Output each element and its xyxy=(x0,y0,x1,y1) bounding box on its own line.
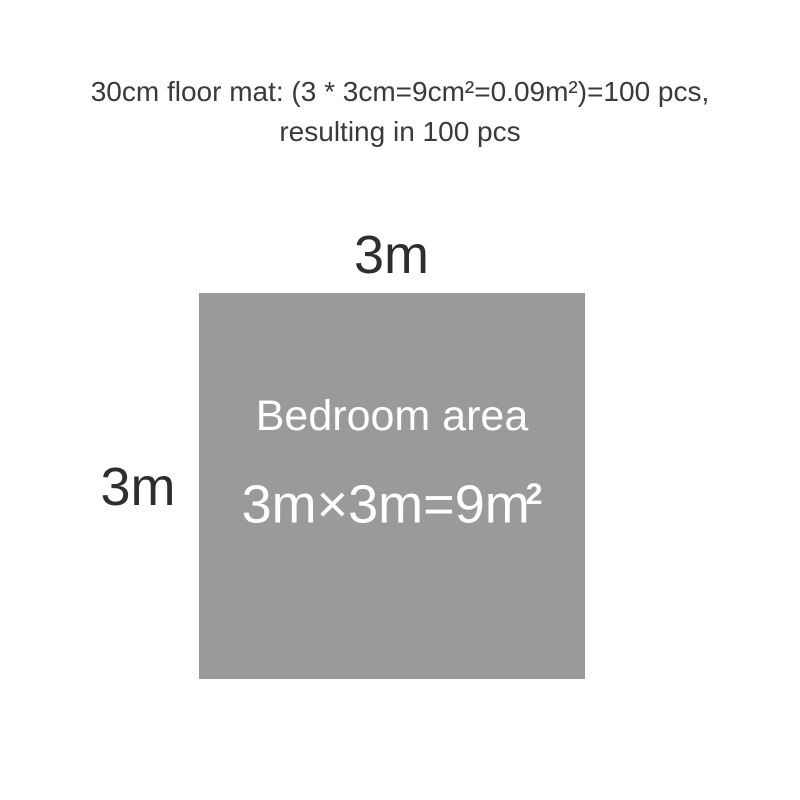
top-dimension-label: 3m xyxy=(198,228,585,282)
bedroom-square: Bedroom area 3m×3m=9m2 xyxy=(199,293,585,679)
area-formula-base: 3m×3m=9m xyxy=(242,475,530,535)
bedroom-area-label: Bedroom area xyxy=(199,393,585,439)
area-formula: 3m×3m=9m2 xyxy=(199,465,585,535)
title-line-1: 30cm floor mat: (3 * 3cm=9cm²=0.09m²)=10… xyxy=(0,72,800,112)
diagram-canvas: 30cm floor mat: (3 * 3cm=9cm²=0.09m²)=10… xyxy=(0,0,800,800)
left-dimension-label: 3m xyxy=(88,460,188,514)
title-line-2: resulting in 100 pcs xyxy=(0,112,800,152)
diagram-title: 30cm floor mat: (3 * 3cm=9cm²=0.09m²)=10… xyxy=(0,72,800,152)
area-formula-superscript: 2 xyxy=(526,465,543,525)
